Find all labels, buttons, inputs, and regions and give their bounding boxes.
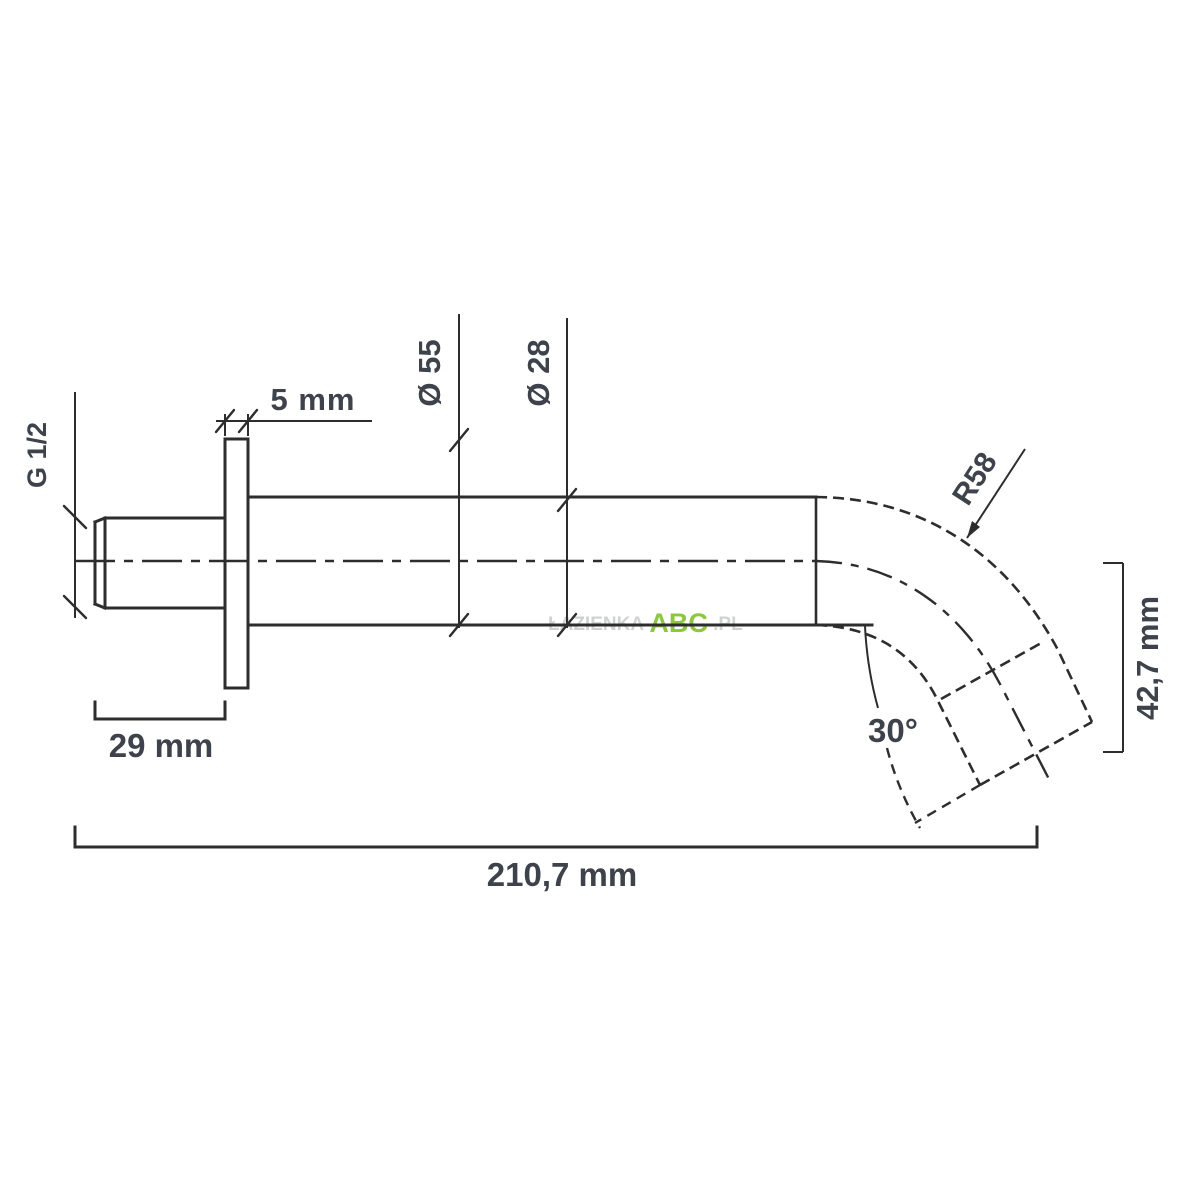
thread-label: G 1/2 xyxy=(22,422,52,488)
technical-drawing-page: ŁAZIENKA ABC .PL G 1/2 5 mm Ø 55 Ø 28 R5… xyxy=(0,0,1200,1200)
bend-outer-edge xyxy=(816,497,1092,722)
bend-radius-label: R58 xyxy=(946,447,1004,511)
centerline-bend xyxy=(816,561,1052,785)
flange-thickness-label: 5 mm xyxy=(271,382,356,417)
drop-height-label: 42,7 mm xyxy=(1130,596,1165,720)
bend-inner-edge xyxy=(816,625,980,785)
flange-outline xyxy=(225,439,248,688)
spout-angle-arc-dashed xyxy=(887,748,920,828)
flange-diameter-label: Ø 55 xyxy=(412,339,447,406)
total-length-bracket xyxy=(75,827,1037,847)
tube-diameter-label: Ø 28 xyxy=(521,339,556,406)
spout-mouth-face xyxy=(980,722,1092,785)
total-length-label: 210,7 mm xyxy=(487,856,637,893)
thread-length-label: 29 mm xyxy=(109,727,214,764)
thread-nipple-outline xyxy=(95,518,225,608)
mouth-face-extension-line xyxy=(915,785,980,823)
drop-height-bracket xyxy=(1103,563,1123,752)
bend-radius-arrowhead xyxy=(967,521,980,538)
spout-technical-drawing: ŁAZIENKA ABC .PL G 1/2 5 mm Ø 55 Ø 28 R5… xyxy=(0,0,1200,1200)
thread-length-bracket xyxy=(95,702,225,719)
watermark: ŁAZIENKA ABC .PL xyxy=(548,608,743,638)
spout-angle-label: 30° xyxy=(868,712,918,749)
watermark-brand: ABC xyxy=(649,608,708,638)
